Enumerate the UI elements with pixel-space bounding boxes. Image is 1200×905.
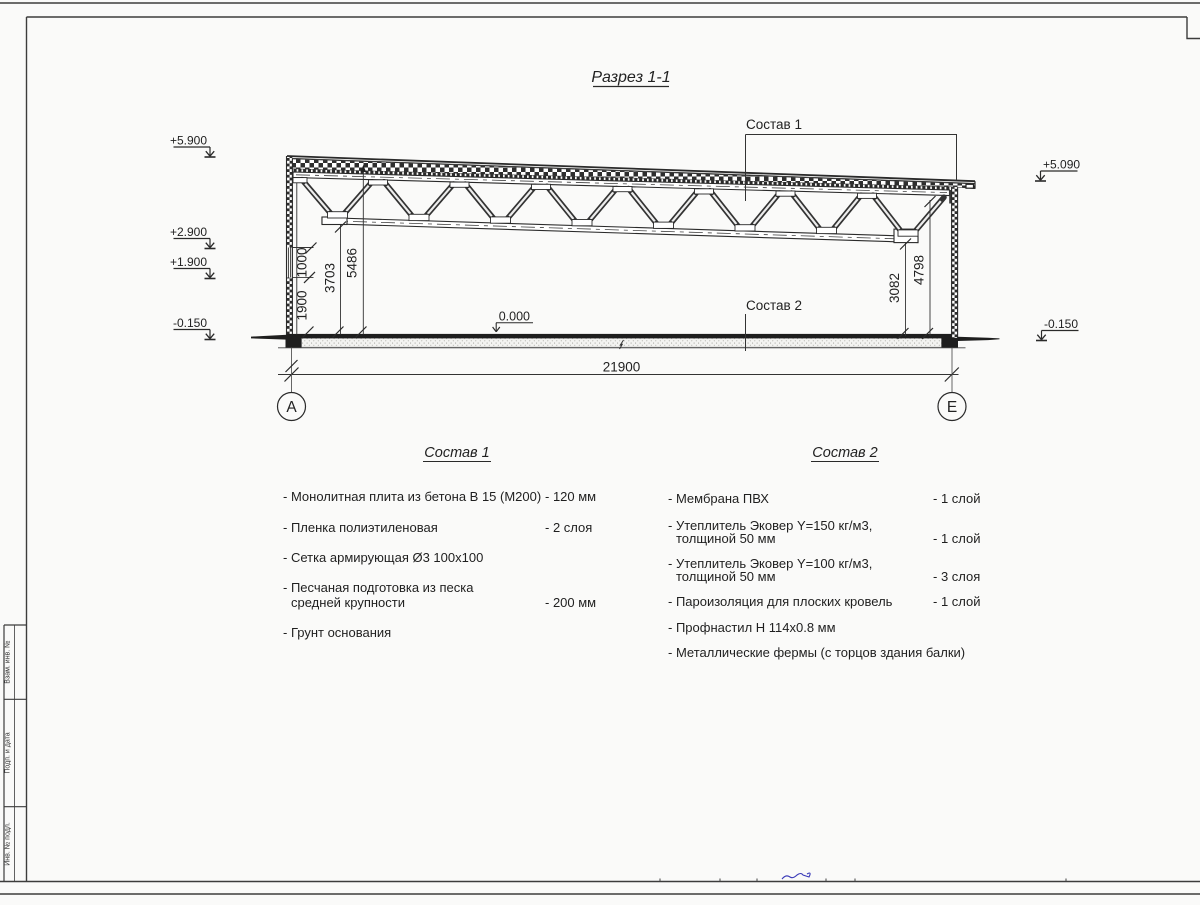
svg-text:1900: 1900 — [295, 290, 310, 320]
svg-text:- 1 слой: - 1 слой — [933, 594, 981, 609]
svg-text:+5.090: +5.090 — [1043, 158, 1080, 172]
svg-text:- 120 мм: - 120 мм — [545, 489, 596, 504]
svg-text:толщиной 50 мм: толщиной 50 мм — [676, 569, 776, 584]
svg-text:- Сетка армирующая Ø3 100х100: - Сетка армирующая Ø3 100х100 — [283, 550, 483, 565]
svg-text:3703: 3703 — [323, 263, 338, 293]
svg-text:- 200 мм: - 200 мм — [545, 595, 596, 610]
svg-text:5486: 5486 — [345, 248, 360, 278]
svg-text:Состав 1: Состав 1 — [424, 445, 489, 461]
svg-text:- Грунт основания: - Грунт основания — [283, 625, 391, 640]
svg-text:Е: Е — [947, 399, 957, 416]
svg-text:Подп. и дата: Подп. и дата — [5, 732, 12, 773]
svg-text:-0.150: -0.150 — [173, 316, 207, 330]
svg-text:0.000: 0.000 — [499, 310, 530, 324]
svg-text:- Мембрана ПВХ: - Мембрана ПВХ — [668, 491, 769, 506]
svg-text:- 3 слоя: - 3 слоя — [933, 569, 980, 584]
svg-text:- 1 слой: - 1 слой — [933, 491, 981, 506]
svg-text:Состав 2: Состав 2 — [812, 445, 877, 461]
svg-text:- Металлические фермы (с торцо: - Металлические фермы (с торцов здания б… — [668, 645, 965, 660]
svg-text:- Монолитная плита из бетона В: - Монолитная плита из бетона В 15 (М200) — [283, 489, 541, 504]
svg-text:Инв. № подл.: Инв. № подл. — [5, 822, 12, 866]
svg-text:21900: 21900 — [603, 360, 641, 375]
svg-text:Состав 2: Состав 2 — [746, 298, 802, 313]
svg-text:Состав 1: Состав 1 — [746, 117, 802, 132]
svg-text:1000: 1000 — [295, 247, 310, 277]
svg-text:- Профнастил Н 114х0.8 мм: - Профнастил Н 114х0.8 мм — [668, 620, 836, 635]
svg-text:+1.900: +1.900 — [170, 255, 207, 269]
svg-text:Разрез 1-1: Разрез 1-1 — [591, 69, 670, 86]
svg-text:3082: 3082 — [887, 273, 902, 303]
svg-text:- Песчаная подготовка из песка: - Песчаная подготовка из песка — [283, 580, 474, 595]
svg-text:толщиной 50 мм: толщиной 50 мм — [676, 531, 776, 546]
svg-text:+5.900: +5.900 — [170, 134, 207, 148]
svg-text:Взам. инв. №: Взам. инв. № — [5, 640, 12, 683]
svg-text:-0.150: -0.150 — [1044, 317, 1078, 331]
svg-text:- Пароизоляция для плоских кро: - Пароизоляция для плоских кровель — [668, 594, 893, 609]
svg-text:средней крупности: средней крупности — [291, 595, 405, 610]
svg-text:4798: 4798 — [912, 255, 927, 285]
svg-text:А: А — [286, 399, 297, 416]
svg-text:- 1 слой: - 1 слой — [933, 531, 981, 546]
svg-text:- Пленка полиэтиленовая: - Пленка полиэтиленовая — [283, 520, 438, 535]
svg-text:- 2 слоя: - 2 слоя — [545, 520, 592, 535]
svg-text:+2.900: +2.900 — [170, 225, 207, 239]
